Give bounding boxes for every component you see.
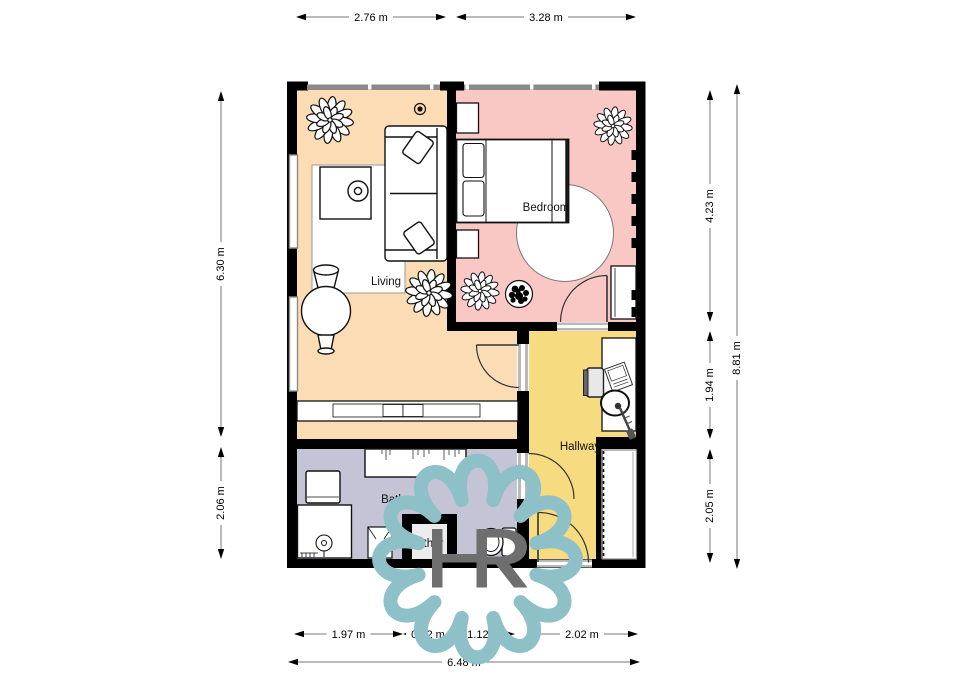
svg-text:2.76 m: 2.76 m — [354, 12, 388, 24]
svg-text:2.05 m: 2.05 m — [704, 489, 716, 523]
svg-text:4.23 m: 4.23 m — [704, 189, 716, 223]
svg-text:2.06 m: 2.06 m — [215, 486, 227, 520]
svg-text:Living: Living — [371, 276, 401, 288]
svg-text:6.30 m: 6.30 m — [215, 247, 227, 281]
svg-text:2.02 m: 2.02 m — [565, 629, 599, 641]
svg-text:Bedroom: Bedroom — [523, 202, 570, 214]
svg-text:1.94 m: 1.94 m — [704, 368, 716, 402]
svg-text:8.81 m: 8.81 m — [731, 341, 743, 375]
svg-text:Hallway: Hallway — [560, 441, 601, 453]
svg-text:3.28 m: 3.28 m — [529, 12, 563, 24]
svg-text:1.97 m: 1.97 m — [332, 629, 366, 641]
